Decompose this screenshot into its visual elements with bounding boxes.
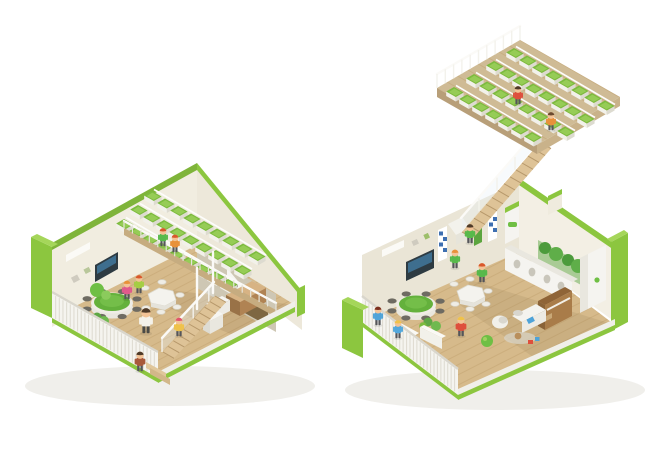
- right-shell-band: [611, 233, 628, 331]
- chair: [451, 302, 459, 307]
- chair: [466, 277, 474, 282]
- stool: [435, 299, 444, 304]
- chair: [482, 302, 490, 307]
- green-round-table: [396, 295, 436, 320]
- stool: [387, 298, 396, 303]
- stool: [132, 296, 141, 301]
- shrub-beanbag: [101, 290, 111, 300]
- chair: [176, 293, 184, 298]
- checker-banner: [438, 226, 447, 262]
- stool: [132, 307, 141, 312]
- stool: [402, 291, 411, 296]
- chair: [450, 282, 458, 287]
- green-ball-highlight: [483, 337, 487, 341]
- stool: [83, 296, 92, 301]
- corner-edge: [297, 285, 305, 317]
- isometric-scene: [0, 0, 650, 459]
- scene-canvas: [0, 0, 650, 459]
- stool: [387, 308, 396, 313]
- stool: [435, 308, 444, 313]
- chair: [173, 305, 181, 310]
- stool: [401, 315, 410, 320]
- chair: [466, 307, 474, 312]
- chair: [158, 280, 166, 285]
- chair: [157, 310, 165, 315]
- green-ball: [481, 335, 493, 347]
- cylinder-pouf: [492, 316, 508, 329]
- chair: [484, 289, 492, 294]
- stool: [118, 314, 127, 319]
- stool: [422, 291, 431, 296]
